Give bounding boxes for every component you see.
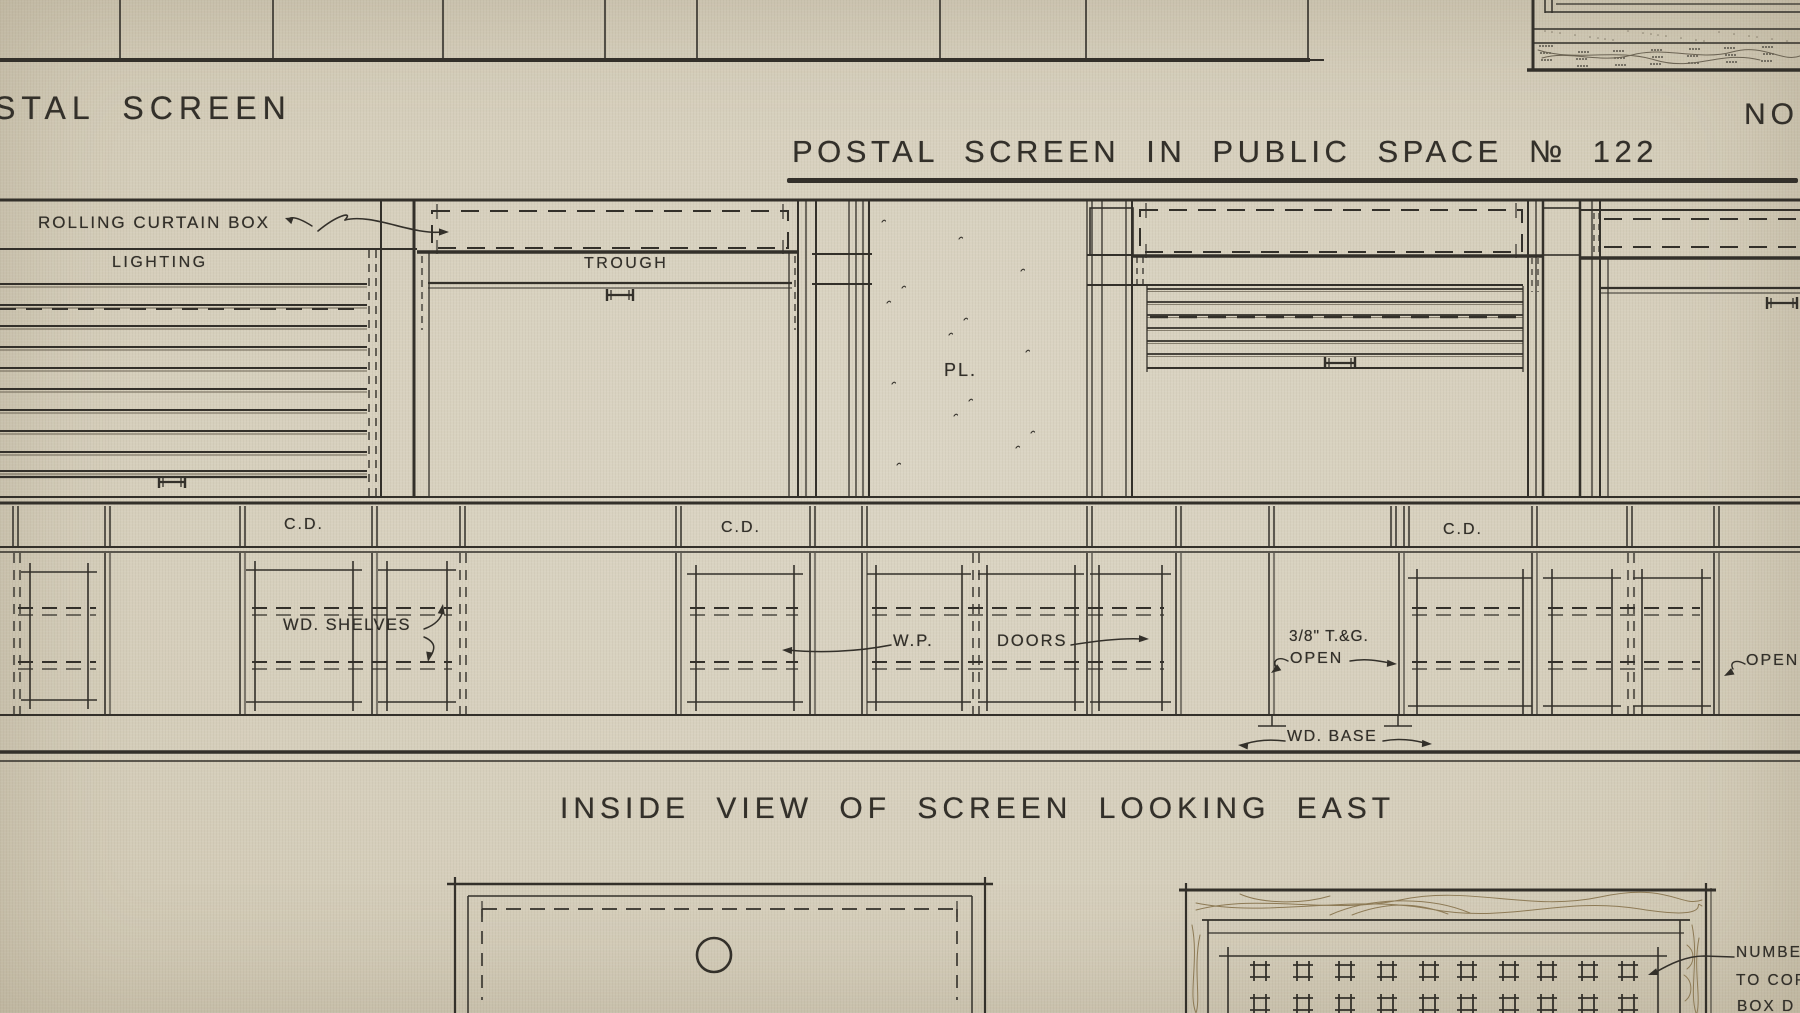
label-trough: TROUGH bbox=[584, 255, 668, 273]
label-tongue-groove: 3/8" T.&G. bbox=[1289, 628, 1369, 646]
top-left-title: STAL SCREEN bbox=[0, 90, 292, 127]
label-counter-door-3: C.D. bbox=[1443, 521, 1483, 539]
label-doors: DOORS bbox=[997, 632, 1068, 651]
section-title: INSIDE VIEW OF SCREEN LOOKING EAST bbox=[560, 792, 1395, 826]
label-wood-shelves: WD. SHELVES bbox=[283, 616, 411, 635]
blueprint-sheet: STAL SCREEN No POSTAL SCREEN IN PUBLIC S… bbox=[0, 0, 1800, 1013]
label-open-right: OPEN bbox=[1746, 652, 1799, 670]
po-box-note-line3: BOX D bbox=[1737, 998, 1795, 1013]
label-lighting: LIGHTING bbox=[112, 254, 208, 272]
po-box-note-line2: TO COR bbox=[1736, 972, 1800, 990]
top-right-title: No bbox=[1744, 98, 1799, 132]
label-counter-door-1: C.D. bbox=[284, 516, 324, 534]
main-title-underline bbox=[787, 178, 1798, 183]
label-plaster: PL. bbox=[944, 360, 977, 381]
label-rolling-curtain-box: ROLLING CURTAIN BOX bbox=[38, 213, 270, 233]
label-open-center: OPEN bbox=[1290, 650, 1343, 668]
label-wp: W.P. bbox=[893, 632, 934, 651]
label-wood-base: WD. BASE bbox=[1287, 728, 1377, 746]
main-title: POSTAL SCREEN IN PUBLIC SPACE № 122 bbox=[792, 134, 1658, 170]
label-counter-door-2: C.D. bbox=[721, 519, 761, 537]
po-box-note-line1: NUMBE bbox=[1736, 944, 1800, 962]
